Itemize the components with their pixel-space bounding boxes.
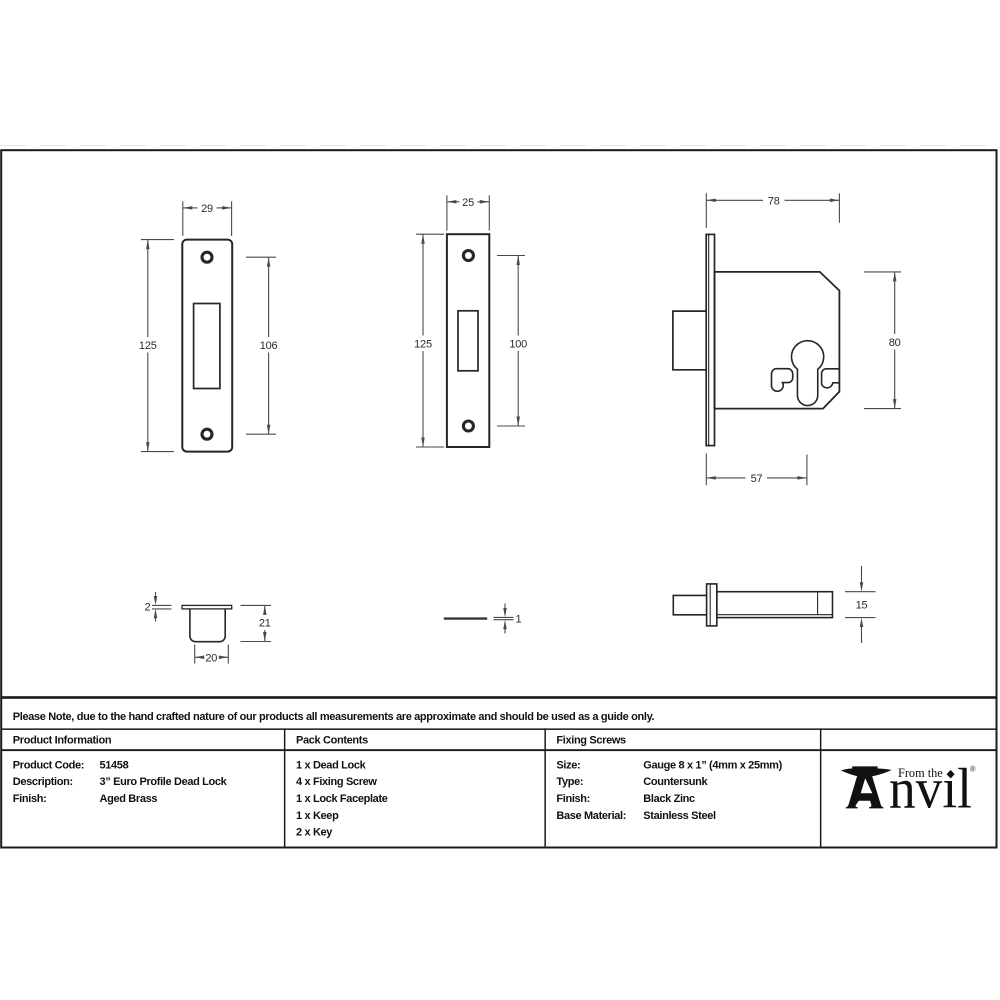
svg-text:Size:: Size: xyxy=(556,759,580,771)
svg-text:Countersunk: Countersunk xyxy=(643,776,708,788)
svg-text:2 x Key: 2 x Key xyxy=(296,827,333,839)
svg-text:®: ® xyxy=(970,765,976,774)
svg-text:106: 106 xyxy=(260,340,278,352)
svg-text:15: 15 xyxy=(856,600,868,612)
svg-text:125: 125 xyxy=(414,338,432,350)
svg-text:25: 25 xyxy=(462,197,474,209)
svg-text:Stainless Steel: Stainless Steel xyxy=(643,810,716,822)
svg-text:1 x Dead Lock: 1 x Dead Lock xyxy=(296,759,367,771)
svg-text:Finish:: Finish: xyxy=(13,793,47,805)
svg-text:20: 20 xyxy=(205,652,217,664)
svg-text:Description:: Description: xyxy=(13,776,73,788)
svg-text:3” Euro Profile Dead Lock: 3” Euro Profile Dead Lock xyxy=(100,776,228,788)
svg-text:4 x Fixing Screw: 4 x Fixing Screw xyxy=(296,776,377,788)
svg-text:29: 29 xyxy=(201,203,213,215)
svg-text:125: 125 xyxy=(139,340,157,352)
svg-text:1: 1 xyxy=(516,614,522,626)
svg-text:Finish:: Finish: xyxy=(556,793,590,805)
svg-text:1 x Keep: 1 x Keep xyxy=(296,810,339,822)
svg-text:Please Note, due to the hand c: Please Note, due to the hand crafted nat… xyxy=(13,711,655,723)
svg-text:80: 80 xyxy=(889,337,901,349)
svg-text:Base Material:: Base Material: xyxy=(556,810,626,822)
svg-text:51458: 51458 xyxy=(100,759,129,771)
svg-text:Aged Brass: Aged Brass xyxy=(100,793,158,805)
svg-text:78: 78 xyxy=(768,195,780,207)
svg-text:21: 21 xyxy=(259,617,271,629)
svg-text:57: 57 xyxy=(751,473,763,485)
svg-text:2: 2 xyxy=(145,602,151,614)
svg-text:Black Zinc: Black Zinc xyxy=(643,793,695,805)
svg-text:100: 100 xyxy=(509,338,527,350)
svg-text:Gauge 8 x 1” (4mm x 25mm): Gauge 8 x 1” (4mm x 25mm) xyxy=(643,759,782,771)
svg-text:nvil: nvil xyxy=(889,758,972,821)
svg-text:Product Information: Product Information xyxy=(13,735,112,747)
svg-text:1 x Lock Faceplate: 1 x Lock Faceplate xyxy=(296,793,388,805)
svg-text:Type:: Type: xyxy=(556,776,583,788)
svg-text:Fixing Screws: Fixing Screws xyxy=(556,735,626,747)
svg-text:Product Code:: Product Code: xyxy=(13,759,84,771)
svg-text:Pack Contents: Pack Contents xyxy=(296,735,368,747)
